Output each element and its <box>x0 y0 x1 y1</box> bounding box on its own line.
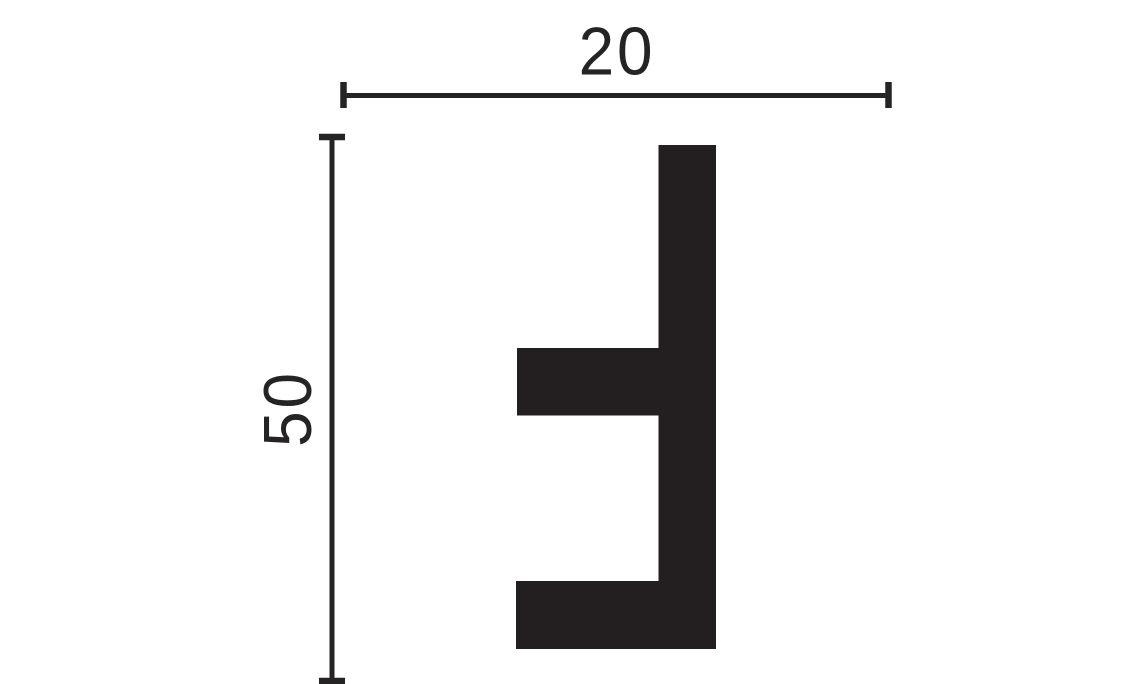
svg-text:20: 20 <box>579 13 656 89</box>
svg-text:50: 50 <box>249 370 325 447</box>
